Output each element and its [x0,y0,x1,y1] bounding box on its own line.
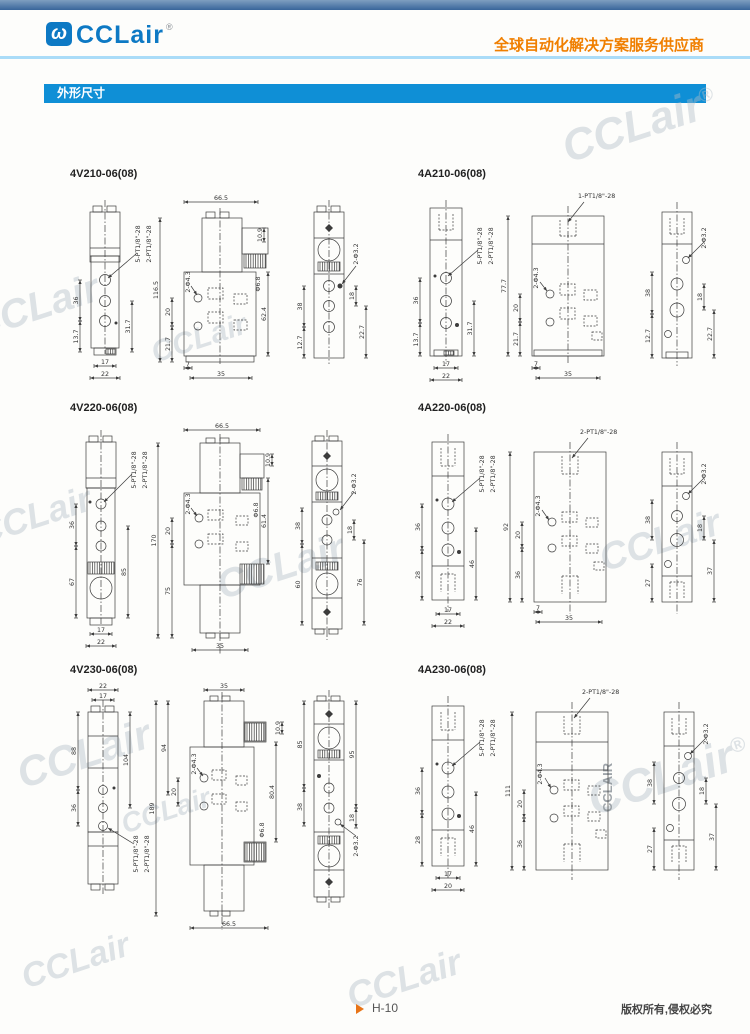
drawing-shape [594,562,604,570]
drawing-shape [170,358,173,362]
drawing-shape [91,884,100,890]
drawing-shape [220,438,229,443]
dim-label: 17 [97,627,105,634]
dim-label: 20 [517,800,524,808]
section-title: 外形尺寸 [57,86,105,100]
drawing-shape [208,312,223,323]
dim-label: 2-Φ3.2 [703,723,710,744]
dim-label: 31.7 [467,321,474,335]
dim-label: 92 [503,523,510,531]
registered-mark-icon: ® [166,22,173,32]
drawing-shape [522,818,525,822]
drawing-shape [170,326,173,330]
drawing-shape [712,310,715,314]
drawing-shape [114,688,118,691]
dim-label: 36 [517,840,524,848]
drawing-shape [548,784,551,788]
drawing-shape [712,598,715,602]
v230-technical-drawing: 221788104365-PT1/8"-282-PT1/8"-283518994… [52,678,397,940]
drawing-shape [430,378,434,381]
dim-label: 36 [71,804,78,812]
drawing-title: 4A230-06(08) [418,664,745,676]
drawing-shape [244,648,248,651]
drawing-shape [195,540,203,548]
drawing-shape [240,564,264,584]
dim-label: 13.7 [73,329,80,343]
drawing-shape [522,814,525,818]
dim-label: 85 [121,568,128,576]
drawing-shape [652,828,655,832]
dim-label: 66.5 [222,921,236,928]
drawing-shape [436,763,439,766]
drawing-shape [302,327,305,331]
drawing-shape [86,644,90,647]
drawing-shape [352,536,355,540]
dim-label: 2-Φ4.3 [185,271,192,292]
drawing-shape [154,701,157,705]
drawing-shape [518,318,521,322]
drawing-shape [274,742,277,746]
drawing-shape [212,794,226,804]
drawing-shape [354,286,357,290]
drawing-shape [457,550,461,554]
footer-arrow-icon [356,1004,364,1014]
drawing-shape [562,512,577,522]
drawing-shape [74,504,77,508]
drawing-shape [436,612,440,615]
drawing-shape [586,518,598,527]
drawing-group-a230: 4A230-06(08) 36284617205-PT1/8"-282-PT1/… [400,664,745,940]
dim-label: 10.9 [275,721,282,735]
dim-label: 10.9 [265,453,272,467]
drawing-shape [154,912,157,916]
drawing-shape [560,284,575,295]
dim-label: 12.7 [297,335,304,349]
drawing-shape [420,596,423,600]
drawing-shape [331,897,340,902]
drawing-shape [454,366,458,369]
drawing-shape [206,212,215,218]
drawing-shape [126,614,129,618]
dim-label: 77.7 [501,279,508,293]
drawing-shape [108,828,112,831]
dim-label: Φ6.8 [253,503,260,518]
drawing-shape [220,212,229,218]
dim-label: 18 [697,293,704,301]
v210-technical-drawing: 3613.731.717225-PT1/8"-282-PT1/8"-2866.5… [52,182,397,397]
drawing-shape [202,218,242,272]
drawing-shape [108,254,136,278]
drawing-shape [208,534,223,544]
drawing-shape [74,614,77,618]
drawing-shape [545,516,549,520]
drawing-shape [166,791,169,795]
dim-label: 88 [71,747,78,755]
drawing-shape [340,824,344,828]
drawing-shape [108,632,112,635]
drawing-shape [418,352,421,356]
dim-label: 13.7 [413,332,420,346]
dim-label: 28 [415,571,422,579]
dim-label: 38 [297,803,304,811]
drawing-shape [508,598,511,602]
dim-label: 2-Φ4.3 [185,493,192,514]
dim-label: 18 [697,524,704,532]
dim-label: 21.7 [165,337,172,351]
drawing-shape [596,830,606,838]
dim-label: 20 [165,527,172,535]
drawing-view: 66.5170207561.410.9Φ6.8352-Φ4.3 [151,423,274,654]
drawing-shape [420,810,423,814]
drawing-shape [712,354,715,358]
dim-label: 67 [69,578,76,586]
footer: H-10 版权所有,侵权必究 [0,1000,750,1022]
dim-label: 2-Φ4.3 [537,763,544,784]
drawing-shape [520,598,523,602]
port-label: 2-PT1/8"-28 [580,429,617,436]
dim-label: 27 [645,579,652,587]
drawing-shape [130,301,133,305]
drawing-shape [317,897,326,902]
drawing-shape [193,291,197,295]
port-label: 2-PT1/8"-28 [490,719,497,756]
drawing-shape [418,278,421,282]
drawing-shape [665,331,672,338]
dim-label: 22.7 [707,327,714,341]
drawing-shape [302,788,305,792]
drawing-shape [206,438,215,443]
drawing-shape [212,770,226,780]
drawing-shape [92,698,96,701]
dim-label: 35 [217,371,225,378]
drawing-shape [222,696,230,701]
dim-label: 94 [161,744,168,752]
dim-label: 17 [442,361,450,368]
drawing-shape [704,800,707,804]
dim-label: 2-Φ3.2 [701,227,708,248]
dim-label: 111 [505,785,512,797]
drawing-view: 2-Φ3.238271837 [647,702,718,880]
drawing-shape [315,436,324,441]
dim-label: 36 [413,296,420,304]
drawing-shape [550,786,558,794]
drawing-view: 381860762-Φ3.2 [295,430,366,640]
drawing-shape [190,926,194,929]
drawing-shape [204,865,244,911]
drawing-shape [354,824,357,828]
drawing-view: 1-PT1/8"-2877.72021.77352-Φ4.3 [501,193,615,380]
drawing-shape [510,712,513,716]
drawing-shape [506,352,509,356]
drawing-shape [667,825,674,832]
port-label: 2-PT1/8"-28 [490,455,497,492]
dim-label: 22 [97,639,105,646]
drawing-shape [302,323,305,327]
dim-label: 36 [415,787,422,795]
drawing-shape [264,926,268,929]
dim-label: 10.9 [257,228,264,242]
drawing-shape [210,696,218,701]
drawing-view: 2-Φ3.23812.71822.7 [645,202,716,366]
drawing-shape [432,624,436,627]
drawing-shape [158,218,161,222]
drawing-shape [474,596,477,600]
port-label: 5-PT1/8"-28 [133,835,140,872]
drawing-shape [588,786,600,795]
drawing-shape [89,436,98,442]
drawing-shape [420,814,423,818]
drawing-shape [170,298,173,302]
dim-label: 18 [699,787,706,795]
a220-technical-drawing: 36284617225-PT1/8"-282-PT1/8"-282-PT1/8"… [400,416,745,661]
drawing-shape [650,536,653,540]
drawing-shape [130,348,133,352]
dim-label: 2-Φ3.2 [351,473,358,494]
drawing-shape [128,804,131,808]
drawing-shape [548,544,556,552]
drawing-shape [315,629,324,634]
drawing-shape [222,911,230,916]
dim-label: 21.7 [513,332,520,346]
drawing-shape [536,376,540,379]
drawing-shape [242,478,262,490]
drawing-shape [354,302,357,306]
drawing-shape [300,508,303,512]
drawing-shape [560,308,575,319]
drawing-shape [206,633,215,638]
footer-copyright: 版权所有,侵权必究 [621,1001,712,1017]
drawing-shape [193,512,197,516]
drawing-shape [520,544,523,548]
drawing-shape [456,876,460,879]
drawing-shape [510,866,513,870]
drawing-shape [128,712,131,716]
drawing-shape [112,644,116,647]
drawing-shape [650,272,653,276]
drawing-group-v220: 4V220-06(08) 36678517225-PT1/8"-282-PT1/… [52,402,397,661]
header-divider [0,56,750,59]
drawing-shape [300,621,303,625]
dim-label: 2-Φ3.2 [353,243,360,264]
drawing-shape [452,478,480,502]
drawing-shape [236,542,248,551]
drawing-shape [652,866,655,870]
drawing-shape [518,294,521,298]
drawing-shape [564,780,579,790]
drawing-shape [317,206,326,212]
drawing-shape [474,792,477,796]
port-label: 5-PT1/8"-28 [479,455,486,492]
drawing-shape [116,376,120,379]
drawing-shape [702,284,705,288]
brand-logo-icon: ω [46,22,72,46]
port-label: 2-PT1/8"-28 [142,451,149,488]
port-label: 2-PT1/8"-28 [582,689,619,696]
drawing-shape [256,428,260,431]
drawing-shape [354,808,357,812]
drawing-shape [436,499,439,502]
dim-label: Φ6.8 [255,277,262,292]
drawing-shape [588,812,600,821]
dim-label: 22.7 [359,325,366,339]
drawing-shape [234,294,247,304]
dim-label: 22 [101,371,109,378]
port-label: 5-PT1/8"-28 [135,225,142,262]
drawing-view: 3613.731.717225-PT1/8"-282-PT1/8"-28 [73,200,153,380]
dim-label: 36 [73,296,80,304]
drawing-shape [520,522,523,526]
drawing-group-v230: 4V230-06(08) 221788104365-PT1/8"-282-PT1… [52,664,397,940]
drawing-shape [338,284,343,289]
drawing-shape [208,288,223,299]
drawing-shape [240,454,264,478]
dim-label: 116.5 [153,281,160,299]
dim-label: 2-Φ4.3 [535,495,542,516]
drawing-shape [91,706,100,712]
drawing-shape [194,294,202,302]
drawing-shape [245,723,265,741]
drawing-title: 4V210-06(08) [70,168,397,180]
dim-label: 38 [295,522,302,530]
drawing-shape [362,540,365,544]
drawing-shape [333,509,339,515]
drawing-shape [194,322,202,330]
drawing-shape [113,787,116,790]
header-tagline: 全球自动化解决方案服务供应商 [494,34,704,55]
dim-label: 62.4 [261,307,268,321]
drawing-shape [546,290,554,298]
drawing-shape [352,520,355,524]
drawing-shape [420,862,423,866]
dim-label: 38 [297,302,304,310]
drawing-shape [274,838,277,842]
drawing-shape [204,688,208,691]
drawing-shape [94,364,98,367]
dim-label: 22 [442,373,450,380]
drawing-shape [254,200,258,203]
drawing-shape [192,648,196,651]
drawing-shape [266,560,269,564]
drawing-shape [418,319,421,323]
drawing-shape [190,376,194,379]
dim-label: 20 [444,883,452,890]
drawing-shape [76,790,79,794]
drawing-shape [586,544,598,553]
dim-label: 76 [357,578,364,586]
drawing-shape [110,698,114,701]
dim-label: 35 [220,683,228,690]
dim-label: 18 [349,292,356,300]
drawing-shape [200,802,208,810]
drawing-shape [156,634,159,638]
drawing-shape [536,620,540,623]
dim-label: 104 [123,754,130,766]
brand-logo: ω CCLair ® [46,22,173,46]
drawing-shape [522,790,525,794]
drawing-shape [107,206,116,212]
drawing-shape [650,564,653,568]
drawing-shape [420,550,423,554]
drawing-shape [103,436,112,442]
drawing-shape [76,786,79,790]
drawing-shape [458,378,462,381]
drawing-shape [650,310,653,314]
drawing-shape [302,354,305,358]
dim-label: 20 [513,304,520,312]
drawing-shape [598,620,602,623]
drawing-shape [204,701,244,747]
drawing-shape [302,701,305,705]
drawing-shape [364,306,367,310]
drawing-shape [78,280,81,284]
drawing-shape [420,546,423,550]
dim-label: 7 [534,361,538,368]
drawing-shape [329,629,338,634]
drawing-title: 4V220-06(08) [70,402,397,414]
drawing-shape [88,688,92,691]
drawing-shape [112,364,116,367]
drawing-shape [354,804,357,808]
drawing-shape [317,696,326,701]
drawing-shape [76,822,79,826]
drawing-shape [184,493,260,585]
dim-label: 20 [515,531,522,539]
drawing-shape [78,348,81,352]
drawing-view: 3613.731.717225-PT1/8"-282-PT1/8"-28 [413,200,495,382]
drawing-shape [714,866,717,870]
drawing-shape [329,436,338,441]
drawing-shape [266,352,269,356]
drawing-shape [584,290,597,300]
dim-label: 17 [444,607,452,614]
drawing-shape [208,510,223,520]
drawing-shape [302,784,305,788]
drawing-shape [562,536,577,546]
drawing-shape [548,518,556,526]
drawing-shape [418,323,421,327]
drawing-view: 221788104365-PT1/8"-282-PT1/8"-28 [71,683,151,894]
dim-label: 2-Φ4.3 [533,267,540,288]
drawing-shape [652,762,655,766]
drawing-shape [93,206,102,212]
dim-label: 46 [469,825,476,833]
drawing-view: 2-PT1/8"-2811120362-Φ4.3 [505,689,619,880]
drawing-shape [714,804,717,808]
dim-label: 18 [349,814,356,822]
drawing-shape [584,316,597,326]
drawing-shape [364,354,367,358]
section-title-bar: 外形尺寸 [44,84,706,103]
dim-label: 61.4 [261,514,268,528]
drawing-shape [74,546,77,550]
port-label: 1-PT1/8"-28 [578,193,615,200]
drawing-view: 3812.71822.72-Φ3.2 [297,200,368,364]
drawing-shape [434,275,437,278]
dim-label: 35 [565,615,573,622]
drawing-shape [665,561,672,568]
drawing-shape [522,866,525,870]
drawing-shape [650,500,653,504]
drawing-shape [460,888,464,891]
drawing-shape [184,200,188,203]
drawing-shape [474,528,477,532]
drawing-shape [170,634,173,638]
drawing-shape [266,478,269,482]
drawing-shape [74,542,77,546]
dim-label: 37 [709,833,716,841]
drawing-shape [248,376,252,379]
drawing-shape [78,321,81,325]
